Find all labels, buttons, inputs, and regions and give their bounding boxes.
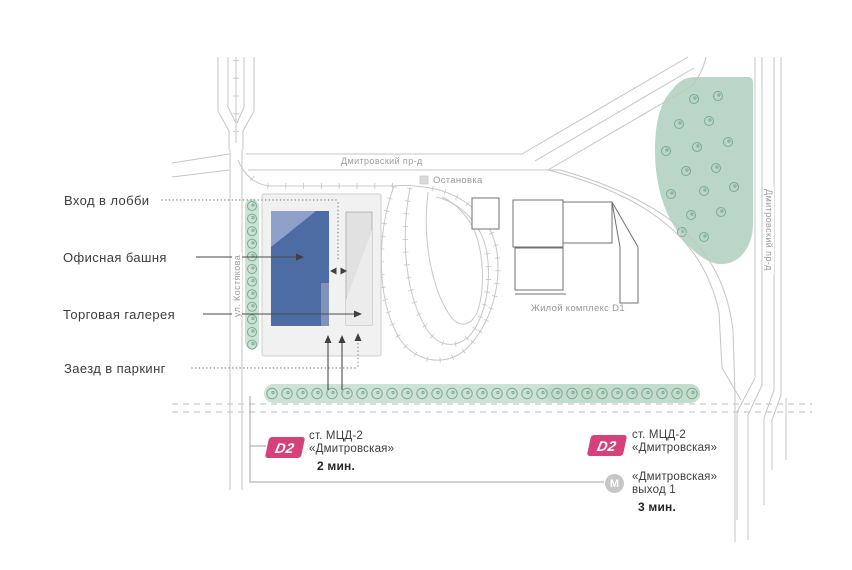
mcd-right-station-line2: «Дмитровская» <box>632 442 717 455</box>
mcd-right-station-line1: ст. МЦД-2 <box>632 429 686 442</box>
legend-retail-gallery: Торговая галерея <box>63 307 175 322</box>
location-map: Вход в лобби Офисная башня Торговая гале… <box>0 0 852 570</box>
street-dmitrovsky-top: Дмитровский пр-д <box>338 156 426 166</box>
mcd-left-station-line2: «Дмитровская» <box>309 443 394 456</box>
metro-icon: M <box>605 474 624 493</box>
office-tower-shape <box>271 211 329 326</box>
legend-lobby-entrance: Вход в лобби <box>64 193 149 208</box>
street-dmitrovsky-right: Дмитровский пр-д <box>764 186 774 274</box>
map-canvas <box>0 0 852 570</box>
mcd-left-station-line1: ст. МЦД-2 <box>309 430 363 443</box>
bus-stop-icon <box>420 176 428 184</box>
d2-line-badge: D2 <box>265 437 305 458</box>
metro-exit-line2: выход 1 <box>632 484 676 497</box>
bus-stop-label: Остановка <box>433 175 483 186</box>
residential-complex-label: Жилой комплекс D1 <box>531 303 625 314</box>
metro-exit-walk-time: 3 мин. <box>638 500 676 514</box>
mcd-left-walk-time: 2 мин. <box>317 459 355 473</box>
metro-exit-line1: «Дмитровская» <box>632 471 717 484</box>
d2-line-badge: D2 <box>587 435 627 456</box>
legend-office-tower: Офисная башня <box>63 250 167 265</box>
street-kostyakova: ул. Костякова <box>232 252 242 320</box>
site-plot <box>262 194 381 356</box>
park-area <box>655 77 753 264</box>
railway-tracks <box>172 404 812 412</box>
retail-gallery-shape <box>346 212 372 325</box>
legend-parking-entrance: Заезд в паркинг <box>64 361 166 376</box>
